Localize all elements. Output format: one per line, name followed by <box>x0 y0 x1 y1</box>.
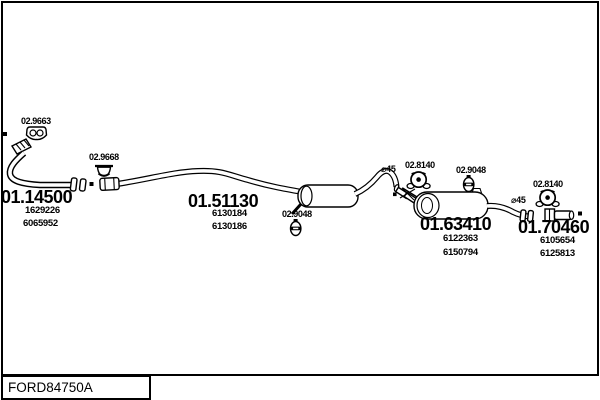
oe-number: 6125813 <box>540 249 575 259</box>
ring-hanger-icon <box>536 190 559 207</box>
drawing-id-label: FORD84750A <box>3 380 93 395</box>
oval-hanger-icon <box>464 175 474 192</box>
pipe-sleeve-joint <box>100 177 120 190</box>
coupling-ring <box>79 179 86 192</box>
marker-dot <box>3 132 7 136</box>
mounting-code-ring-rear: 02.8140 <box>405 161 435 170</box>
part-number-rear-muffler: 01.63410 <box>420 215 491 233</box>
two-hole-bracket-icon <box>27 127 47 140</box>
oe-number: 6130186 <box>212 222 247 232</box>
oe-number: 1629226 <box>25 206 60 216</box>
mounting-code-clamp-front: 02.9668 <box>89 153 119 162</box>
mounting-code-hanger-rear: 02.9048 <box>456 166 486 175</box>
marker-dot <box>90 182 94 186</box>
drawing-id-box: FORD84750A <box>1 375 151 400</box>
marker-dot <box>578 212 582 216</box>
mounting-code-hanger-mid: 02.9048 <box>282 210 312 219</box>
front-downpipe-drawing <box>10 139 86 191</box>
dome-clamp-icon <box>95 166 113 176</box>
oe-number: 6122363 <box>443 234 478 244</box>
mounting-code-ring-tail: 02.8140 <box>533 180 563 189</box>
oval-hanger-icon <box>291 219 301 236</box>
ring-hanger-icon <box>407 172 430 189</box>
center-resonator <box>298 185 358 207</box>
exhaust-parts-diagram: 02.9663 02.9668 02.9048 02.8140 02.9048 … <box>0 0 600 400</box>
marker-dot <box>393 193 397 197</box>
oe-number: 6065952 <box>23 219 58 229</box>
oe-number: 6105654 <box>540 236 575 246</box>
part-number-tail-pipe: 01.70460 <box>518 218 589 236</box>
oe-number: 6150794 <box>443 248 478 258</box>
diameter-label-mid: ⌀45 <box>381 165 396 174</box>
diameter-label-tail: ⌀45 <box>511 196 526 205</box>
exhaust-system-drawing <box>0 0 600 400</box>
mounting-code-bracket-front: 02.9663 <box>21 117 51 126</box>
oe-number: 6130184 <box>212 209 247 219</box>
part-number-front-pipe: 01.14500 <box>1 188 72 206</box>
